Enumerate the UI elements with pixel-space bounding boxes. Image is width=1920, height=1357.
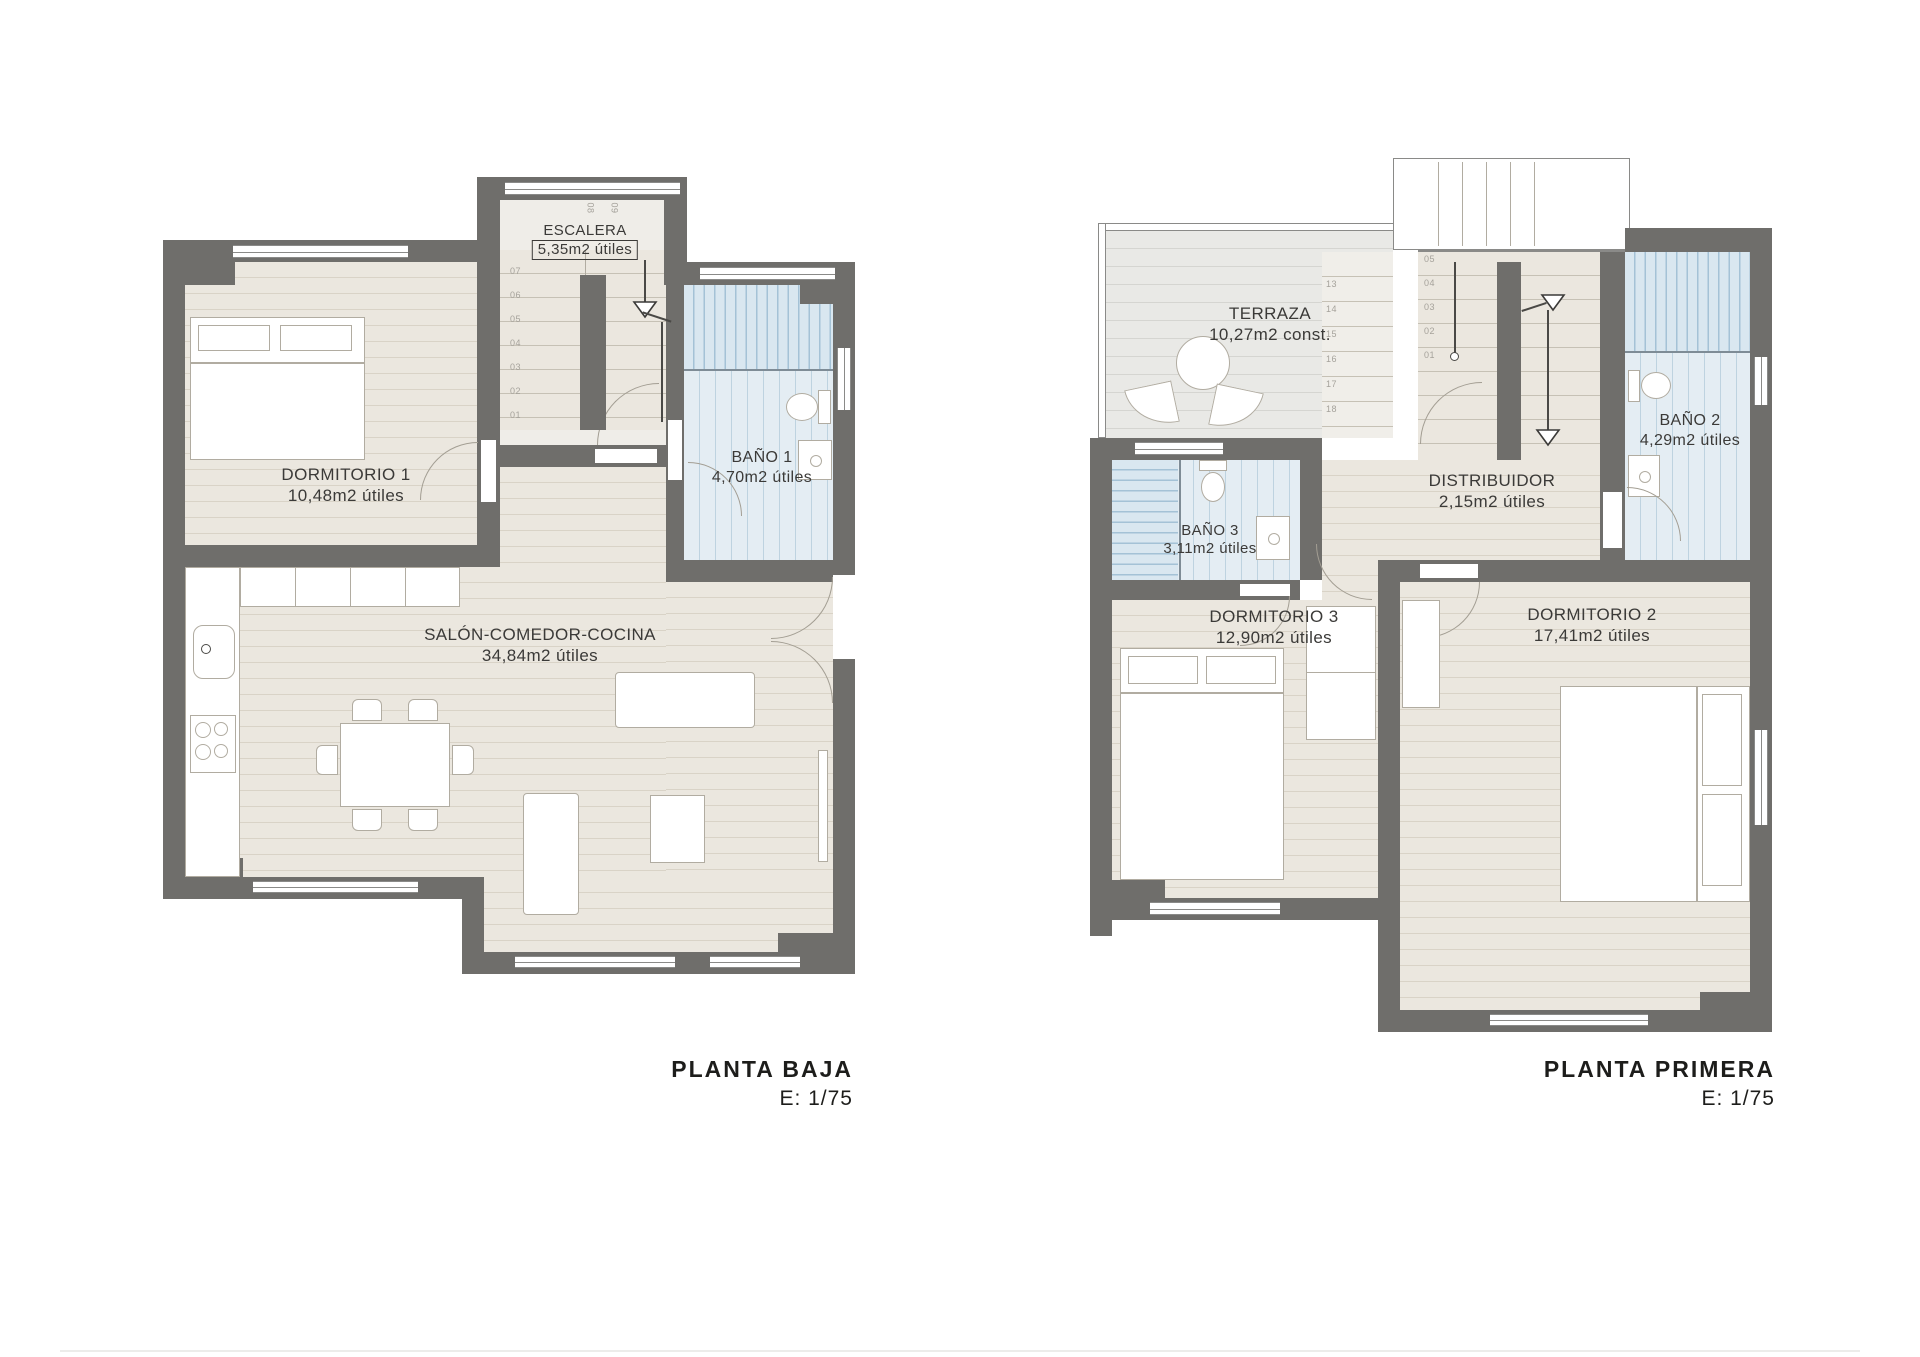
stair-down-arrow-icon	[1535, 428, 1561, 447]
tower-step-line	[1510, 162, 1511, 246]
toilet-icon	[1201, 472, 1225, 502]
bano2-shower-screen	[1625, 351, 1750, 353]
stair-stringer-wall	[1497, 262, 1521, 460]
stair-step-number: 18	[1326, 404, 1337, 414]
window	[1754, 730, 1768, 825]
room-name: BAÑO 3	[1163, 522, 1256, 540]
tower-step-line	[1438, 162, 1439, 246]
stair-edge-line	[1418, 250, 1630, 252]
room-area: 10,27m2 const.	[1209, 324, 1331, 345]
plan-scale: E: 1/75	[1544, 1087, 1775, 1111]
door-opening	[1240, 584, 1290, 596]
plan-planta-primera: 13 14 15 16 17 18 05 04 03 02 01	[0, 0, 1920, 1357]
room-name: TERRAZA	[1209, 303, 1331, 324]
floor-plan-sheet: 07 06 05 04 03 02 01 08 09	[0, 0, 1920, 1357]
bano3-shower-floor	[1112, 460, 1178, 580]
bed-fold-line	[1696, 686, 1698, 902]
toilet-icon	[1641, 372, 1671, 399]
window	[1150, 902, 1280, 915]
window	[1754, 357, 1768, 405]
tower-step-line	[1462, 162, 1463, 246]
room-area: 2,15m2 útiles	[1429, 491, 1556, 512]
bathroom-sink	[1256, 516, 1290, 560]
bed-pillow	[1702, 794, 1742, 886]
wall-segment	[1090, 438, 1112, 936]
stair-start-marker	[1450, 352, 1459, 361]
stair-step-number: 04	[1424, 278, 1435, 288]
room-area: 12,90m2 útiles	[1209, 627, 1338, 648]
bed-pillow	[1702, 694, 1742, 786]
wall-segment	[1750, 228, 1772, 1032]
stair-step-number: 13	[1326, 279, 1337, 289]
stair-walk-line	[1454, 262, 1456, 354]
door-opening	[1603, 492, 1622, 548]
room-name: DORMITORIO 3	[1209, 606, 1338, 627]
stair-step-number: 05	[1424, 254, 1435, 264]
tower-step-line	[1534, 162, 1535, 246]
wall-segment	[1378, 560, 1400, 910]
terrace-parapet	[1098, 223, 1106, 438]
terrace-parapet	[1098, 223, 1394, 231]
tower-step-line	[1486, 162, 1487, 246]
toilet-tank	[1628, 370, 1640, 402]
room-label-terraza: TERRAZA 10,27m2 const.	[1209, 303, 1331, 345]
room-area: 3,11m2 útiles	[1163, 540, 1256, 558]
bed-fold-line	[1120, 692, 1284, 694]
window	[1490, 1014, 1648, 1026]
room-name: BAÑO 2	[1640, 411, 1740, 431]
room-name: DISTRIBUIDOR	[1429, 470, 1556, 491]
room-label-distribuidor: DISTRIBUIDOR 2,15m2 útiles	[1429, 470, 1556, 512]
stair-step-number: 02	[1424, 326, 1435, 336]
dresser	[1402, 600, 1440, 708]
stair-step-number: 17	[1326, 379, 1337, 389]
bed-pillow	[1128, 656, 1198, 684]
bano3-shower-screen	[1179, 460, 1181, 580]
room-label-bano2: BAÑO 2 4,29m2 útiles	[1640, 411, 1740, 451]
room-area: 4,29m2 útiles	[1640, 431, 1740, 451]
bed-pillow	[1206, 656, 1276, 684]
wall-segment	[1600, 560, 1772, 582]
window	[1135, 442, 1223, 455]
wall-corner	[1700, 992, 1772, 1032]
sheet-footer-line	[60, 1350, 1860, 1352]
wardrobe-divider	[1306, 672, 1376, 673]
room-name: DORMITORIO 2	[1527, 604, 1656, 625]
stair-step-number: 01	[1424, 350, 1435, 360]
toilet-tank	[1199, 460, 1227, 471]
room-label-bano3: BAÑO 3 3,11m2 útiles	[1163, 522, 1256, 558]
stair-step-number: 03	[1424, 302, 1435, 312]
stair-step-number: 16	[1326, 354, 1337, 364]
plan-title: PLANTA PRIMERA	[1544, 1056, 1775, 1083]
room-label-dormitorio3: DORMITORIO 3 12,90m2 útiles	[1209, 606, 1338, 648]
stair-walk-line	[1547, 310, 1549, 430]
bano2-shower-floor	[1625, 252, 1750, 352]
door-opening	[1420, 564, 1478, 578]
plan-title-block: PLANTA PRIMERA E: 1/75	[1544, 1056, 1775, 1111]
room-label-dormitorio2: DORMITORIO 2 17,41m2 útiles	[1527, 604, 1656, 646]
stair-tower-outline	[1393, 158, 1630, 250]
room-area: 17,41m2 útiles	[1527, 625, 1656, 646]
